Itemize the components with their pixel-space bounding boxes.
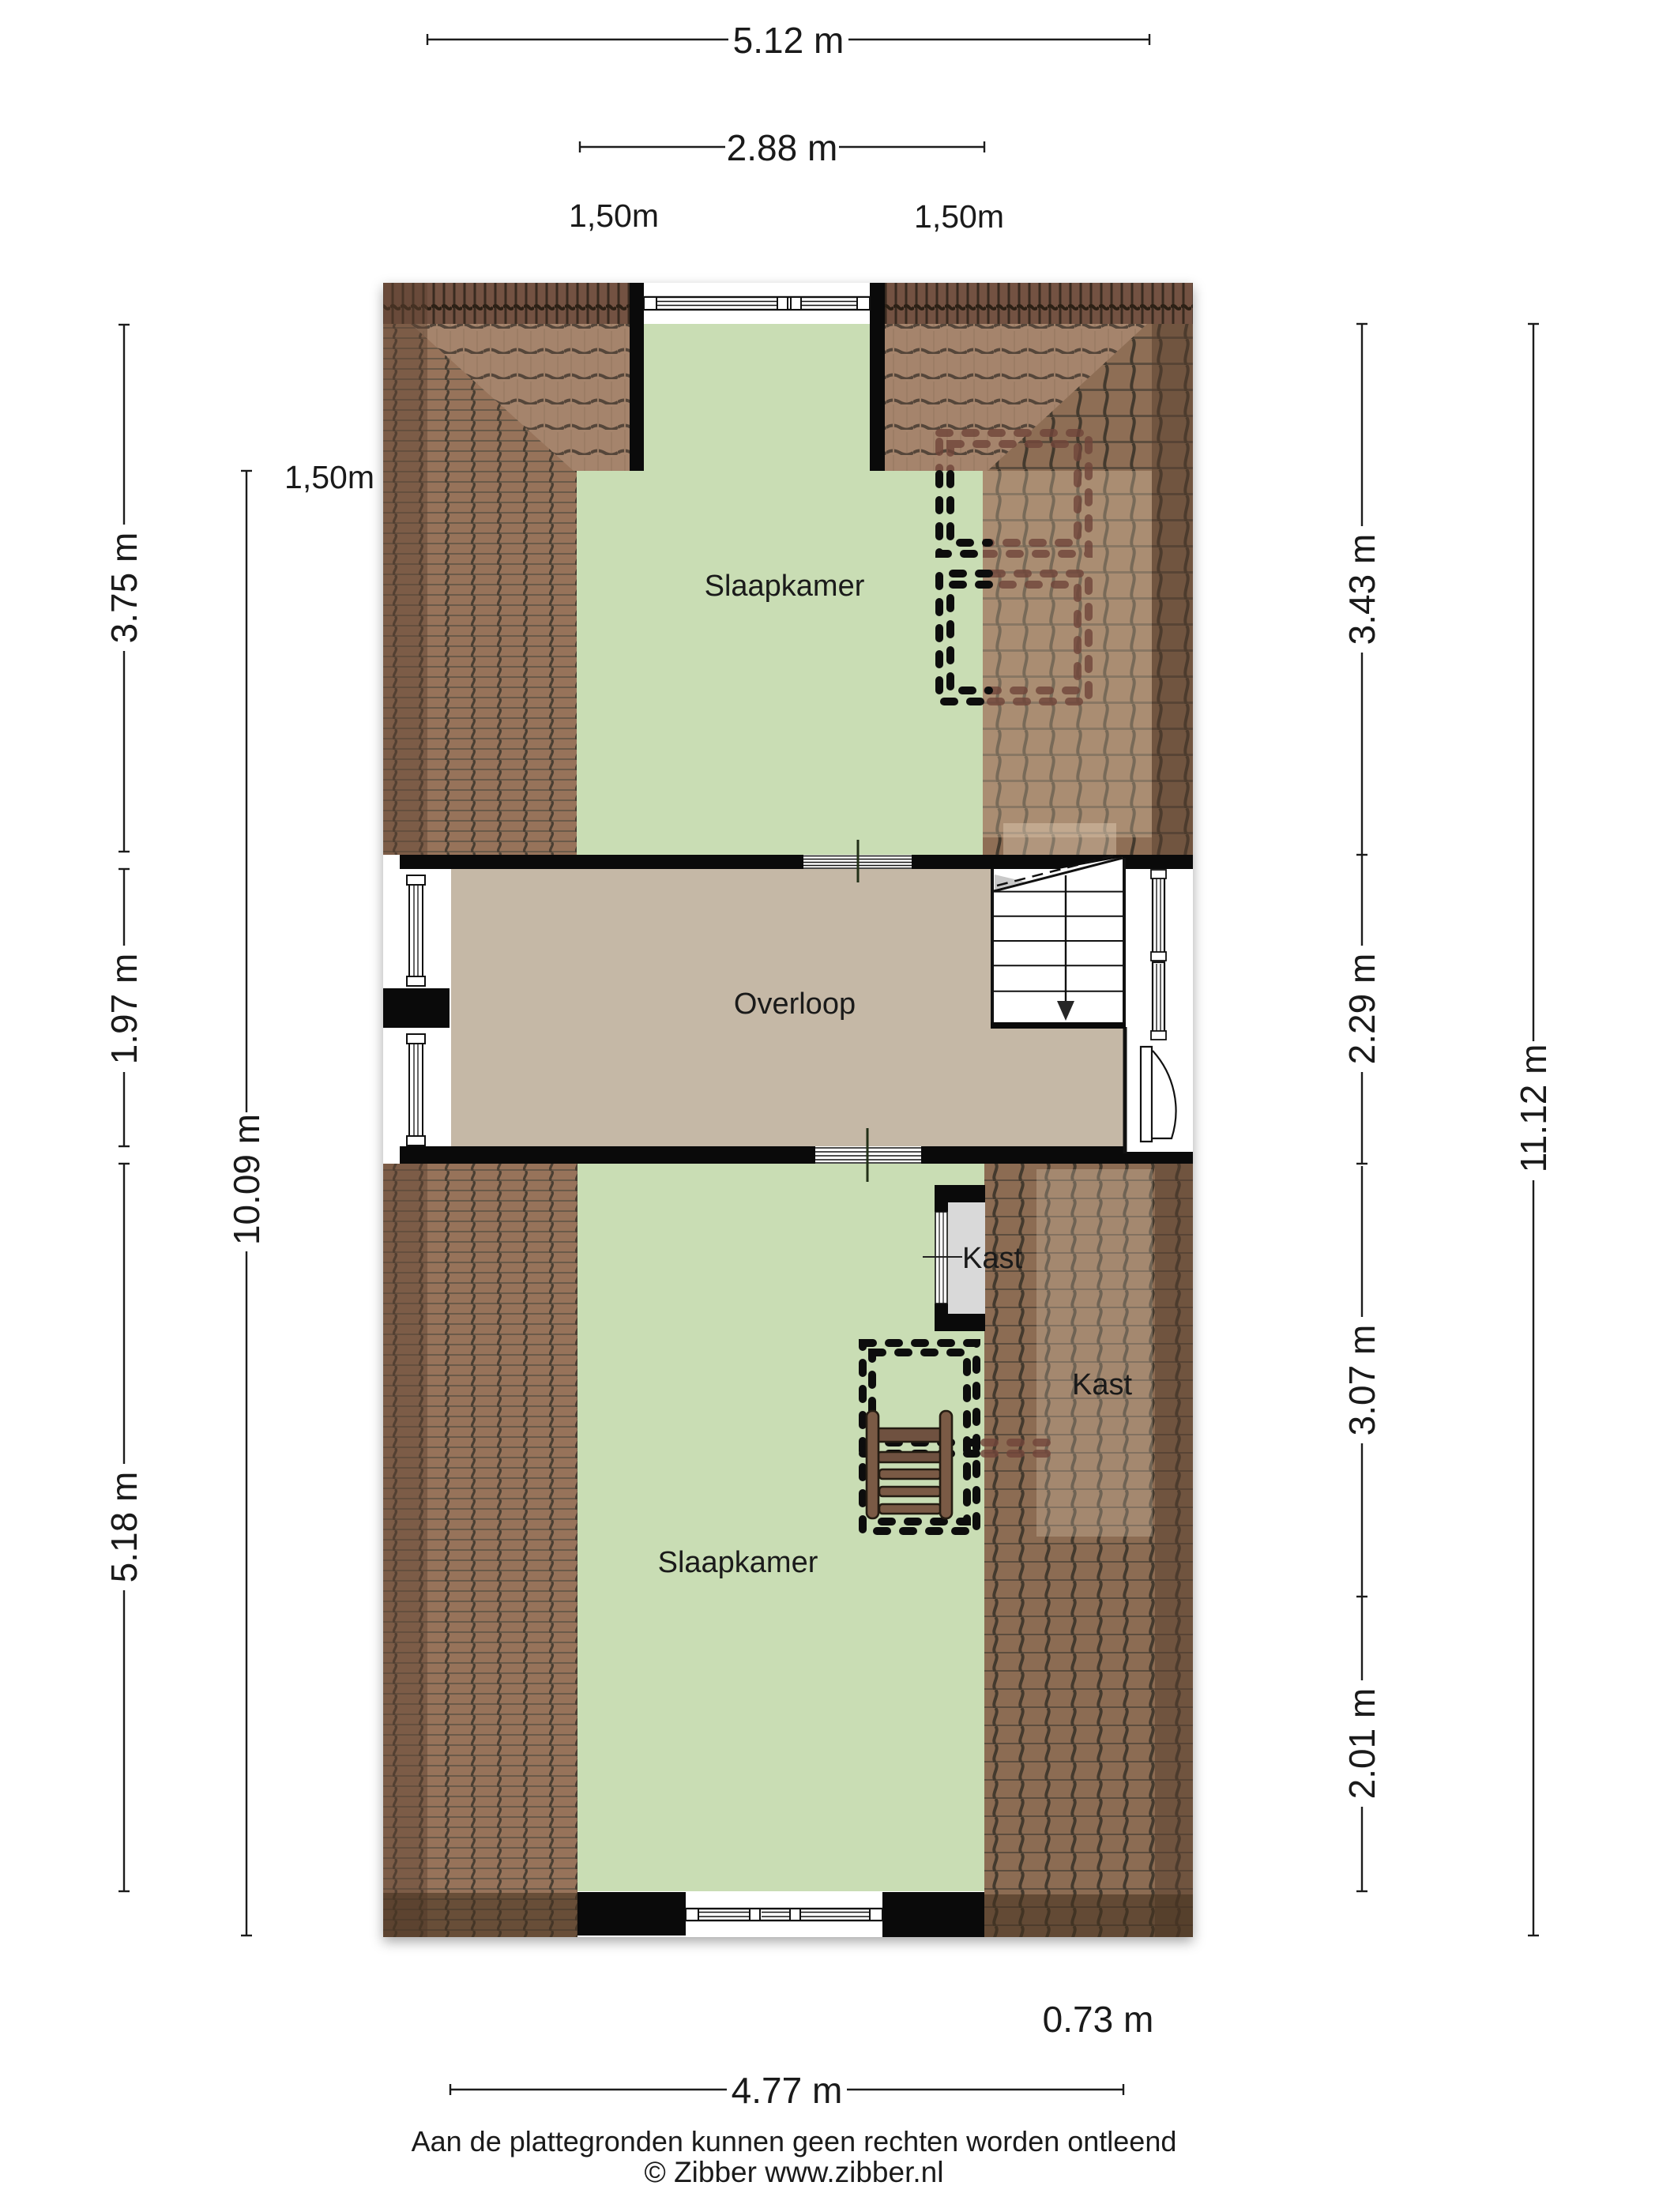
svg-text:5.18 m: 5.18 m — [103, 1472, 145, 1583]
svg-text:3.07 m: 3.07 m — [1341, 1325, 1382, 1436]
svg-text:1.97 m: 1.97 m — [103, 954, 145, 1065]
svg-text:Overloop: Overloop — [734, 987, 856, 1021]
svg-text:2.88 m: 2.88 m — [727, 127, 838, 168]
svg-text:Kast: Kast — [1072, 1368, 1132, 1401]
svg-text:Aan de plattegronden kunnen ge: Aan de plattegronden kunnen geen rechten… — [412, 2125, 1177, 2157]
svg-text:4.77 m: 4.77 m — [732, 2070, 843, 2111]
svg-text:3.43 m: 3.43 m — [1341, 534, 1382, 645]
svg-text:1,50m: 1,50m — [569, 197, 659, 234]
svg-text:11.12 m: 11.12 m — [1513, 1044, 1554, 1173]
svg-text:1,50m: 1,50m — [914, 198, 1004, 235]
svg-text:2.29 m: 2.29 m — [1341, 954, 1382, 1065]
svg-text:Slaapkamer: Slaapkamer — [658, 1546, 818, 1579]
svg-text:3.75 m: 3.75 m — [103, 532, 145, 644]
svg-text:Kast: Kast — [962, 1242, 1022, 1275]
svg-text:© Zibber www.zibber.nl: © Zibber www.zibber.nl — [645, 2156, 944, 2188]
svg-text:10.09 m: 10.09 m — [226, 1114, 267, 1245]
svg-text:5.12 m: 5.12 m — [733, 20, 845, 61]
svg-text:0.73 m: 0.73 m — [1043, 1999, 1154, 2040]
svg-text:2.01 m: 2.01 m — [1341, 1688, 1382, 1800]
svg-text:Slaapkamer: Slaapkamer — [705, 570, 865, 603]
svg-text:1,50m: 1,50m — [284, 459, 374, 495]
